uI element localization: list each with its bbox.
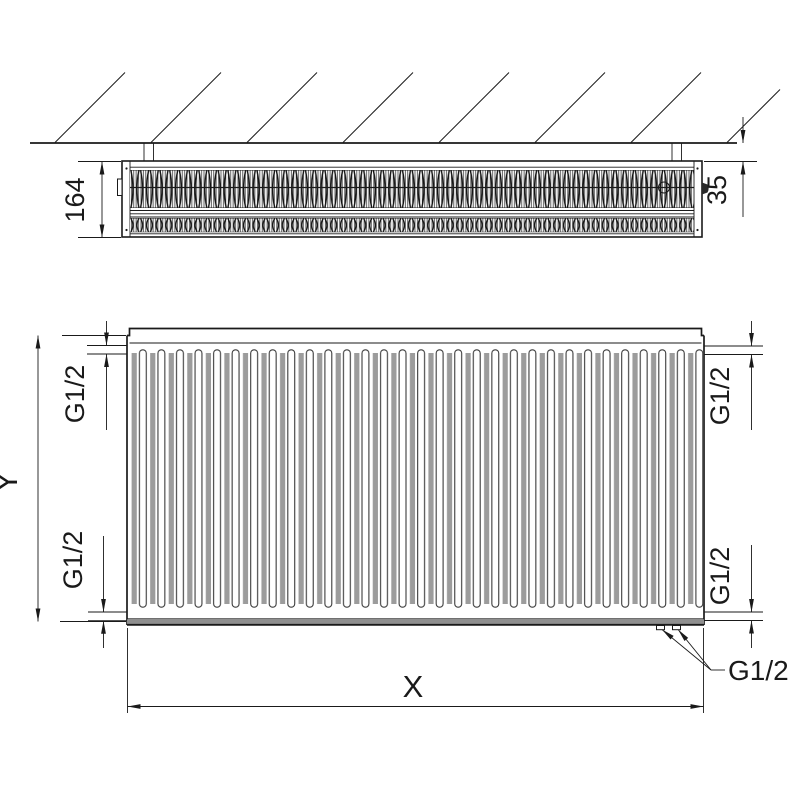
dim-label-Y: Y xyxy=(0,472,24,493)
bottom-connection-tab-1 xyxy=(657,626,665,630)
bottom-connection-tab-2 xyxy=(673,626,681,630)
cap-dot xyxy=(696,167,698,169)
g12-label-bottom-left: G1/2 xyxy=(58,531,88,590)
g12-label-bottom-right: G1/2 xyxy=(705,547,735,606)
g12-label-top-left: G1/2 xyxy=(60,365,90,424)
front-panel-ribs xyxy=(129,349,704,608)
radiator-technical-drawing: 164 35 Y xyxy=(0,0,800,800)
side-connection-boss xyxy=(118,179,123,196)
g12-label-bottom-center: G1/2 xyxy=(728,655,789,686)
top-view-radiator xyxy=(118,161,709,237)
dim-label-X: X xyxy=(403,669,424,704)
cap-dot xyxy=(125,167,127,169)
front-view-radiator xyxy=(127,329,704,630)
convector-fins-upper xyxy=(130,171,694,208)
dim-label-164: 164 xyxy=(60,177,90,222)
cap-dot xyxy=(125,229,127,231)
drawing-canvas: 164 35 Y xyxy=(0,0,800,800)
cap-dot xyxy=(696,229,698,231)
convector-fins-lower xyxy=(130,219,694,232)
g12-label-top-right: G1/2 xyxy=(705,367,735,426)
front-bottom-band xyxy=(127,619,704,624)
dim-label-35: 35 xyxy=(702,175,732,205)
